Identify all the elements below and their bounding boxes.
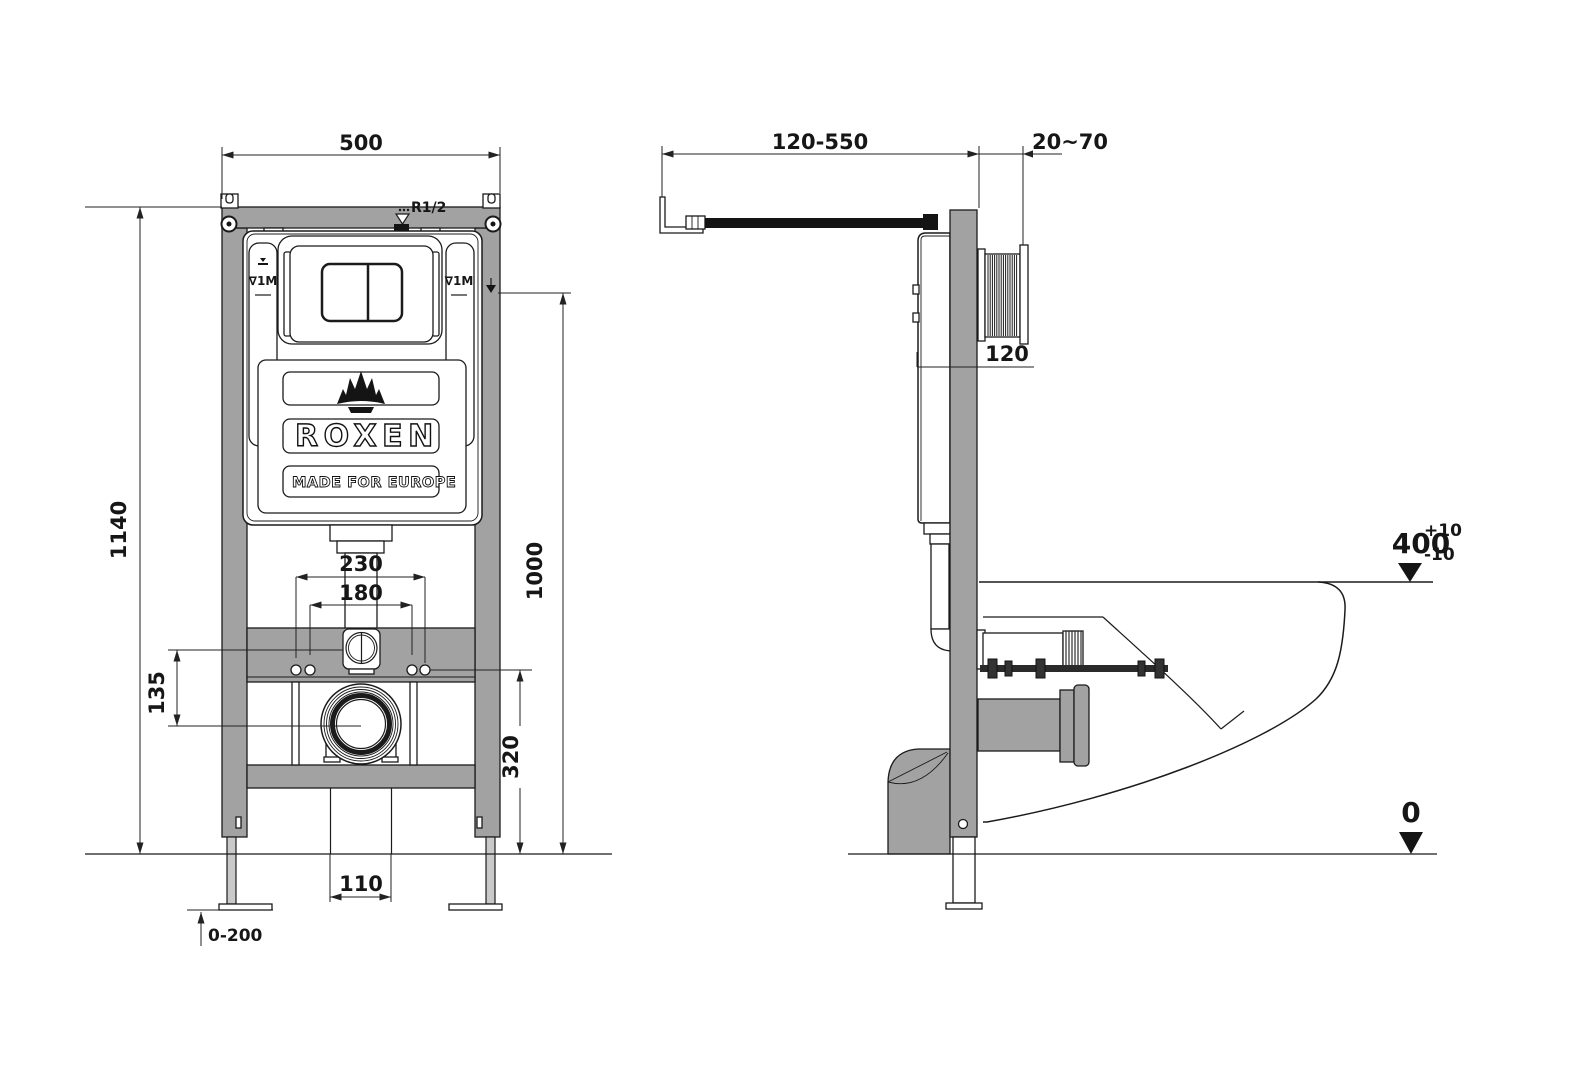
rim-tol-plus: +10 <box>1424 521 1462 541</box>
inlet-thread-label: R1/2 <box>411 200 446 216</box>
bolt-hole <box>407 665 417 675</box>
tank-mark-right: ∇1M <box>445 274 474 288</box>
side-foot-plate <box>946 903 982 909</box>
dim-height: 1140 <box>107 501 131 559</box>
bowl-step-line <box>1221 711 1244 729</box>
inlet-fitting <box>343 629 380 674</box>
stud-nut <box>1155 659 1164 678</box>
foot-plate-left <box>219 904 272 910</box>
leader-dot <box>399 209 401 211</box>
cistern-outlet <box>330 525 392 632</box>
flush-down-pipe <box>931 544 949 629</box>
leader-dot <box>407 209 409 211</box>
rail-hole <box>959 820 968 829</box>
leader-dot <box>403 209 405 211</box>
outlet-stub-wide <box>330 525 392 541</box>
tank-mark-left: ∇1M <box>249 274 278 288</box>
dim-supply-reach: 120-550 <box>772 130 868 154</box>
tank-clip <box>913 285 919 294</box>
waste-pipe-body <box>978 699 1060 751</box>
rail-notch-left <box>236 817 241 828</box>
access-shaft <box>978 245 1028 344</box>
stud-washer <box>1138 661 1145 676</box>
tank-taper-step <box>930 534 950 544</box>
side-rail <box>950 210 977 837</box>
brand-tagline: MADE FOR EUROPE <box>292 475 456 491</box>
lower-crossbar <box>247 765 475 788</box>
crown-base-icon <box>348 407 374 413</box>
side-frame <box>946 210 982 909</box>
dim-frame-depth: 120 <box>985 342 1029 366</box>
flush-buttons <box>322 264 402 321</box>
front-view: R1/2 ∇1M ∇1M <box>85 131 612 946</box>
corner-tab-right-slot <box>488 194 495 203</box>
brand-name: ROXEN <box>295 419 439 454</box>
flush-connection <box>977 630 1168 678</box>
brand-panel: ROXEN MADE FOR EUROPE <box>258 360 466 513</box>
foot-plate-right <box>449 904 502 910</box>
dim-bolt-span: 180 <box>339 581 383 605</box>
front-legs <box>219 817 502 910</box>
top-rail <box>222 207 500 228</box>
leg-left <box>227 837 236 904</box>
leg-right <box>486 837 495 904</box>
side-view: 120-550 20~70 120 400 +10 -10 0 <box>660 130 1462 909</box>
bolt-hole <box>291 665 301 675</box>
stud-nut <box>988 659 997 678</box>
stud-washer <box>1005 661 1012 676</box>
rim-tol-minus: -10 <box>1424 545 1455 565</box>
dim-outlet-height: 320 <box>499 735 523 779</box>
dim-inlet-outlet: 135 <box>145 671 169 715</box>
side-leg <box>953 837 975 903</box>
bolt-hole <box>420 665 430 675</box>
bolt-hole <box>305 665 315 675</box>
strut-left <box>292 682 299 765</box>
shaft-flange-inner <box>978 249 985 341</box>
supply-pipe-run <box>705 218 923 228</box>
supply-coupling <box>686 216 705 229</box>
technical-drawing-canvas: R1/2 ∇1M ∇1M <box>0 0 1571 1080</box>
bolt-right-dot <box>491 222 496 227</box>
level-bar-left <box>258 263 268 265</box>
dim-drain-width: 110 <box>339 872 383 896</box>
supply-pipe <box>660 197 938 233</box>
waste-flange <box>1060 690 1074 762</box>
installation-frame-drawing: R1/2 ∇1M ∇1M <box>0 0 1571 1080</box>
outlet-foot-right <box>382 757 398 762</box>
shaft-flange-outer <box>1020 245 1028 344</box>
waste-connector <box>978 685 1089 766</box>
datum-triangle-icon <box>1398 563 1422 582</box>
dim-wall-finish: 20~70 <box>1032 130 1108 154</box>
datum-triangle-icon <box>1399 832 1423 854</box>
outlet-foot-left <box>324 757 340 762</box>
floor-level-label: 0 <box>1401 796 1420 829</box>
bolt-left-dot <box>227 222 232 227</box>
supply-connector <box>923 214 938 230</box>
dim-leg-range: 0-200 <box>208 926 263 946</box>
waste-flange-cap <box>1074 685 1089 766</box>
dim-inlet-span: 230 <box>339 552 383 576</box>
waste-elbow-body <box>888 749 950 854</box>
waste-elbow <box>888 749 950 854</box>
dim-flush-height: 1000 <box>523 542 547 600</box>
rail-notch-right <box>477 817 482 828</box>
strut-right <box>410 682 417 765</box>
dim-width: 500 <box>339 131 383 155</box>
cistern-side <box>913 233 953 651</box>
stud-nut <box>1036 659 1045 678</box>
waste-outlet <box>321 684 401 764</box>
corner-tab-left-slot <box>226 194 233 203</box>
tank-clip <box>913 313 919 322</box>
tank-side-body <box>918 233 950 523</box>
inlet-fitting-bracket <box>349 669 374 674</box>
tank-taper-step <box>924 523 950 534</box>
